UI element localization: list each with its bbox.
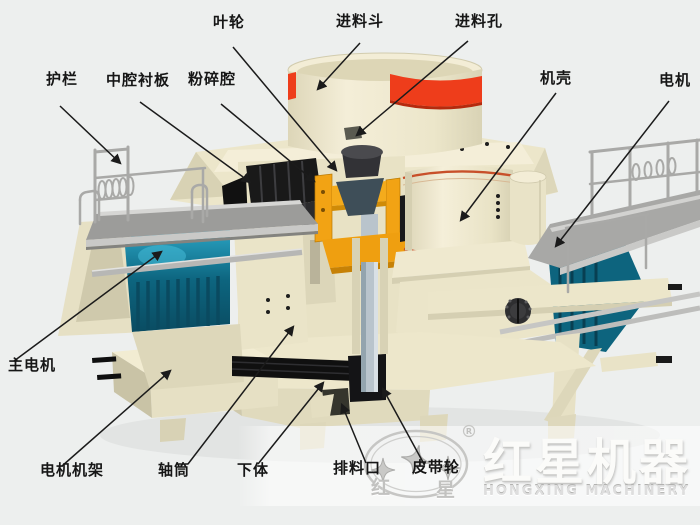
diagram-stage: R 红 星 红星机器 HONGXING MACHINERY 护栏 [0, 0, 700, 525]
leader-pidailun [383, 389, 424, 464]
leader-xiati [258, 383, 323, 464]
leader-yelun [233, 47, 336, 170]
leader-jinliaodou [318, 43, 360, 89]
label-motor: 电机 [659, 73, 691, 88]
label-cavity-liner: 中腔衬板 [106, 73, 170, 88]
label-motor-frame: 电机机架 [40, 463, 104, 478]
label-lower-body: 下体 [237, 463, 269, 478]
leader-lines [0, 0, 700, 525]
leader-zhudianji [14, 252, 161, 361]
label-feed-hole: 进料孔 [455, 14, 503, 29]
label-crushing-chamber: 粉碎腔 [188, 72, 236, 87]
leader-dianjijijia [62, 371, 170, 466]
label-guardrail: 护栏 [46, 72, 78, 87]
leader-fensuiqiang [221, 104, 314, 181]
label-shaft-cylinder: 轴筒 [158, 463, 190, 478]
label-belt-pulley: 皮带轮 [412, 460, 460, 475]
label-main-motor: 主电机 [8, 358, 56, 373]
leader-hulan [60, 106, 120, 163]
label-casing: 机壳 [540, 71, 572, 86]
leader-jike [461, 93, 556, 220]
leader-zhoutong [188, 327, 293, 464]
leader-pailiaokou [342, 405, 366, 463]
leader-jinliaokong [357, 41, 468, 135]
leader-dianji [556, 101, 669, 246]
label-impeller: 叶轮 [213, 15, 245, 30]
label-discharge-port: 排料口 [333, 461, 381, 476]
label-feed-hopper: 进料斗 [336, 14, 384, 29]
